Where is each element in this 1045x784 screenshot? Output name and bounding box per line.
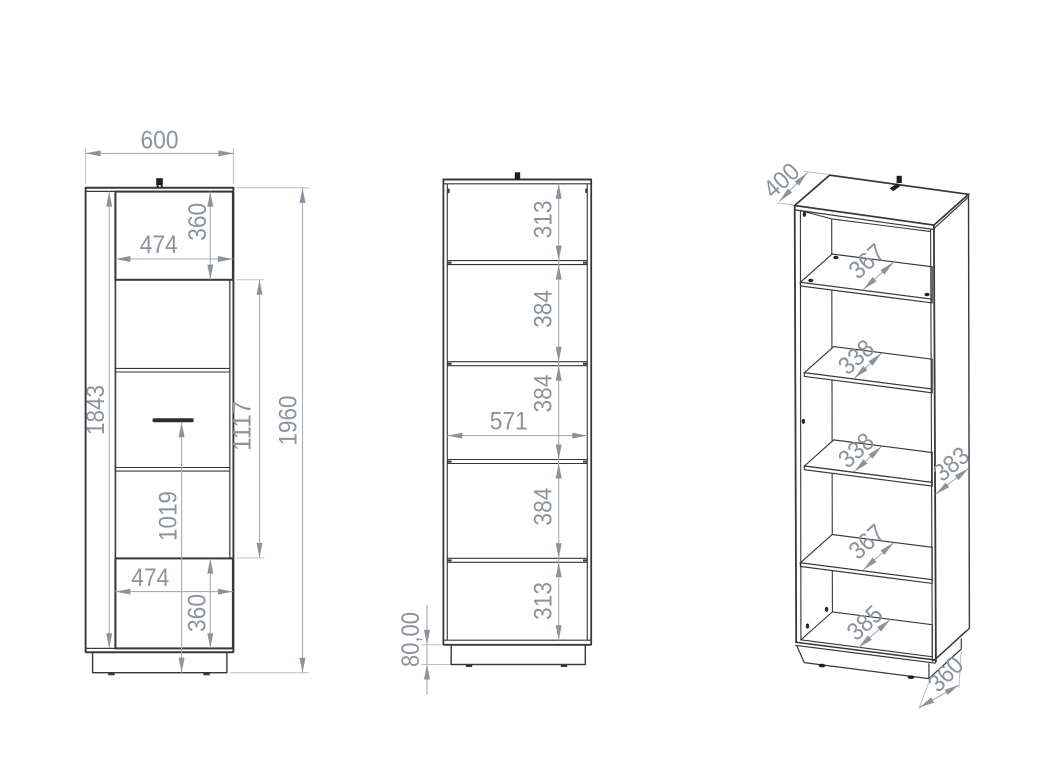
svg-text:600: 600 [141, 127, 179, 155]
svg-text:1843: 1843 [82, 385, 110, 435]
svg-text:313: 313 [530, 582, 558, 620]
svg-text:360: 360 [184, 594, 212, 632]
svg-text:384: 384 [530, 374, 558, 412]
svg-text:474: 474 [131, 564, 169, 592]
svg-text:313: 313 [530, 200, 558, 238]
svg-text:360: 360 [184, 203, 212, 241]
svg-text:571: 571 [490, 408, 528, 436]
svg-text:474: 474 [140, 231, 178, 259]
svg-text:384: 384 [530, 488, 558, 526]
svg-text:384: 384 [530, 290, 558, 328]
svg-text:80,00: 80,00 [397, 612, 425, 667]
svg-text:1960: 1960 [275, 396, 303, 446]
svg-text:1019: 1019 [154, 491, 182, 541]
svg-text:1117: 1117 [229, 401, 257, 451]
